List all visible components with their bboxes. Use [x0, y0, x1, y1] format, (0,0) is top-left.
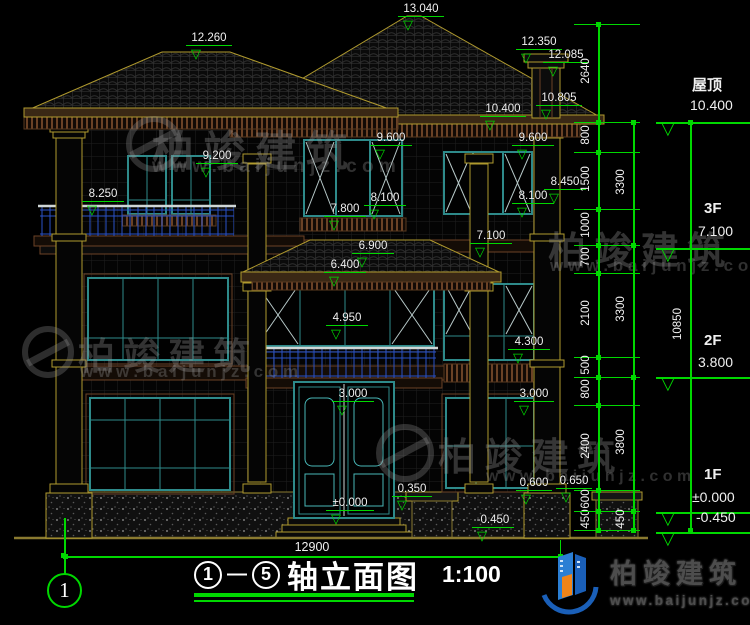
- elevation-value: 6.900: [352, 240, 394, 252]
- elevation-value: 4.300: [508, 336, 550, 348]
- elevation-value: 9.600: [370, 132, 412, 144]
- elevation-marker: ±0.000▽: [326, 493, 374, 523]
- elevation-marker: 12.260▽: [186, 28, 232, 58]
- elevation-triangle-icon: ▽: [661, 510, 675, 526]
- axis-grid-number: 1: [59, 578, 70, 603]
- cad-elevation-canvas: 柏竣建筑www.baijunjz.com柏竣建筑www.baijunjz.com…: [0, 0, 750, 625]
- dimension-chain-line: [598, 24, 600, 530]
- elevation-value: 10.805: [536, 92, 582, 104]
- dimension-value: 3800: [615, 410, 627, 474]
- dimension-extension-line: [574, 245, 640, 246]
- dimension-extension-line: [574, 122, 640, 123]
- elevation-triangle-icon: ▽: [397, 498, 407, 511]
- drawing-title-text: 轴立面图: [287, 552, 419, 597]
- axis-range-dash: —: [227, 563, 247, 586]
- elevation-triangle-icon: ▽: [329, 274, 339, 287]
- elevation-marker: 3.000▽: [332, 384, 374, 414]
- elevation-value: 8.100: [512, 190, 554, 202]
- elevation-triangle-icon: ▽: [517, 205, 527, 218]
- elevation-triangle-icon: ▽: [369, 207, 379, 220]
- elevation-triangle-icon: ▽: [517, 147, 527, 160]
- elevation-value: 9.200: [196, 150, 238, 162]
- elevation-triangle-icon: ▽: [201, 165, 211, 178]
- elevation-triangle-icon: ▽: [475, 245, 485, 258]
- storey-label: 屋顶: [692, 74, 722, 95]
- elevation-value: 9.600: [512, 132, 554, 144]
- elevation-triangle-icon: ▽: [403, 18, 413, 31]
- elevation-triangle-icon: ▽: [485, 118, 495, 131]
- elevation-triangle-icon: ▽: [661, 246, 675, 262]
- elevation-marker: 3.000▽: [514, 384, 554, 414]
- elevation-triangle-icon: ▽: [548, 64, 558, 77]
- elevation-value: 3.000: [514, 388, 554, 400]
- logo-website-url: www.baijunjz.com: [610, 593, 750, 608]
- elevation-value: 0.600: [516, 477, 552, 489]
- elevation-marker: -0.450▽: [472, 510, 514, 540]
- elevation-triangle-icon: ▽: [331, 327, 341, 340]
- elevation-value: ±0.000: [326, 497, 374, 509]
- storey-label: 2F: [704, 332, 722, 349]
- drawing-scale: 1:100: [442, 561, 501, 588]
- elevation-marker: 7.100▽: [470, 226, 512, 256]
- elevation-marker: 8.250▽: [82, 184, 124, 214]
- elevation-value: 12.260: [186, 32, 232, 44]
- storey-label: 1F: [704, 466, 722, 483]
- elevation-marker: 10.805▽: [536, 88, 582, 118]
- dimension-value: 450: [580, 487, 592, 551]
- elevation-value: -0.450: [472, 514, 514, 526]
- dimension-value: 3300: [615, 277, 627, 341]
- elevation-marker: 8.100▽: [364, 188, 406, 218]
- elevation-marker: 7.800▽: [324, 199, 366, 229]
- annotation-layer: 12.260▽13.040▽12.350▽12.085▽10.805▽10.40…: [0, 0, 750, 625]
- elevation-triangle-icon: ▽: [331, 512, 341, 525]
- dimension-chain-line: [633, 122, 635, 530]
- elevation-marker: 13.040▽: [398, 0, 444, 29]
- dimension-value: 450: [615, 487, 627, 551]
- dimension-chain-line: [690, 122, 692, 530]
- elevation-value: 4.950: [326, 312, 368, 324]
- storey-label: 3F: [704, 200, 722, 217]
- drawing-title: 1 — 5 轴立面图 1:100: [194, 552, 501, 597]
- dimension-value: 2640: [580, 39, 592, 103]
- elevation-triangle-icon: ▽: [337, 403, 347, 416]
- elevation-triangle-icon: ▽: [375, 147, 385, 160]
- elevation-marker: 0.600▽: [516, 473, 552, 503]
- elevation-triangle-icon: ▽: [541, 107, 551, 120]
- elevation-marker: 6.400▽: [324, 255, 366, 285]
- company-logo: 柏竣建筑 www.baijunjz.com: [540, 545, 750, 615]
- dimension-tick: [688, 120, 693, 125]
- elevation-triangle-icon: ▽: [191, 47, 201, 60]
- dimension-value: 800: [580, 357, 592, 421]
- dimension-extension-line: [574, 511, 640, 512]
- elevation-triangle-icon: ▽: [521, 51, 531, 64]
- axis-end-bubble: 5: [252, 561, 280, 589]
- elevation-marker: 4.300▽: [508, 332, 550, 362]
- elevation-value: 13.040: [398, 3, 444, 15]
- elevation-triangle-icon: ▽: [87, 203, 97, 216]
- storey-elevation: 10.400: [690, 97, 733, 113]
- elevation-marker: 8.100▽: [512, 186, 554, 216]
- axis-grid-bubble: 1: [47, 573, 82, 608]
- elevation-marker: 0.350▽: [392, 479, 432, 509]
- dimension-tick: [688, 528, 693, 533]
- dimension-value: 3300: [615, 150, 627, 214]
- elevation-value: 6.400: [324, 259, 366, 271]
- elevation-marker: 9.600▽: [370, 128, 412, 158]
- storey-elevation: ±0.000: [692, 489, 735, 505]
- elevation-value: 8.100: [364, 192, 406, 204]
- elevation-marker: 9.600▽: [512, 128, 554, 158]
- elevation-triangle-icon: ▽: [521, 492, 531, 505]
- elevation-triangle-icon: ▽: [661, 530, 675, 546]
- dimension-extension-line: [574, 377, 640, 378]
- elevation-marker: 10.400▽: [480, 99, 526, 129]
- storey-elevation: 7.100: [698, 223, 733, 239]
- elevation-triangle-icon: ▽: [661, 120, 675, 136]
- storey-elevation: 3.800: [698, 354, 733, 370]
- elevation-marker: 4.950▽: [326, 308, 368, 338]
- title-underline-thin: [194, 600, 414, 602]
- elevation-triangle-icon: ▽: [513, 351, 523, 364]
- axis-grid-line: [64, 518, 66, 574]
- logo-brand-text: 柏竣建筑: [610, 552, 750, 591]
- elevation-value: 7.100: [470, 230, 512, 242]
- dimension-value: 700: [580, 225, 592, 289]
- axis-start-bubble: 1: [194, 561, 222, 589]
- elevation-triangle-icon: ▽: [329, 218, 339, 231]
- storey-elevation: -0.450: [696, 509, 736, 525]
- elevation-value: 8.250: [82, 188, 124, 200]
- dimension-extension-line: [574, 530, 640, 531]
- title-underline-thick: [194, 593, 414, 597]
- elevation-triangle-icon: ▽: [477, 529, 487, 542]
- elevation-value: 3.000: [332, 388, 374, 400]
- dimension-value: 10850: [672, 292, 684, 356]
- elevation-value: 7.800: [324, 203, 366, 215]
- dimension-extension-line: [574, 24, 640, 25]
- elevation-triangle-icon: ▽: [661, 375, 675, 391]
- axis-line-node: [61, 553, 66, 558]
- logo-building-icon: [540, 545, 602, 615]
- elevation-value: 0.350: [392, 483, 432, 495]
- elevation-marker: 9.200▽: [196, 146, 238, 176]
- elevation-triangle-icon: ▽: [519, 403, 529, 416]
- elevation-triangle-icon: ▽: [561, 490, 571, 503]
- elevation-value: 10.400: [480, 103, 526, 115]
